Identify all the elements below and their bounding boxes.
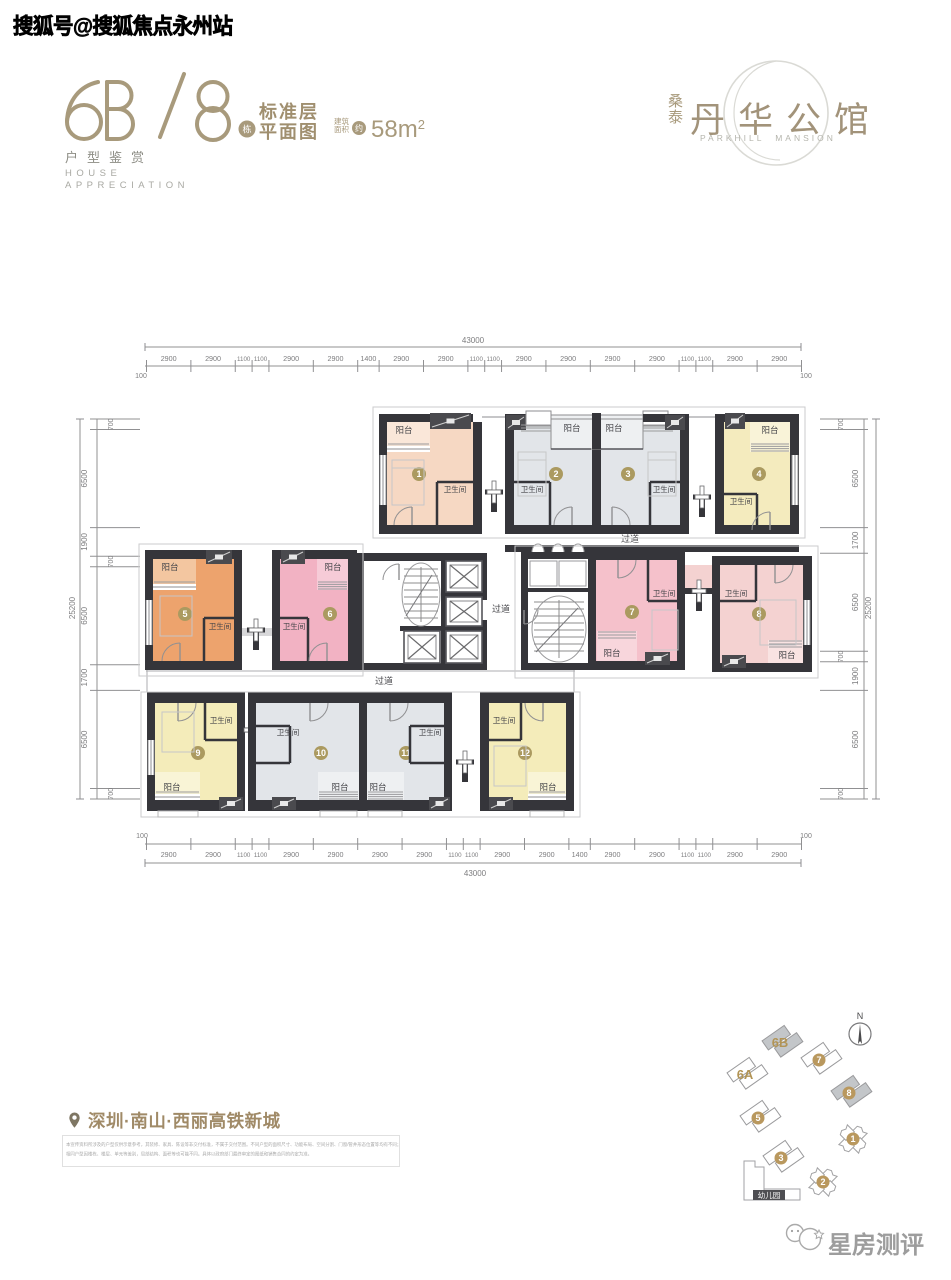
- svg-text:阳台: 阳台: [778, 650, 795, 660]
- svg-text:2900: 2900: [604, 354, 620, 363]
- svg-text:阳台: 阳台: [369, 782, 386, 792]
- svg-text:1100: 1100: [486, 356, 500, 363]
- svg-text:卫生间: 卫生间: [444, 484, 467, 494]
- svg-text:25200: 25200: [68, 596, 77, 619]
- svg-text:8: 8: [756, 609, 761, 619]
- svg-text:10: 10: [316, 748, 326, 758]
- svg-text:2900: 2900: [516, 354, 532, 363]
- svg-text:2900: 2900: [161, 850, 177, 859]
- svg-text:2900: 2900: [283, 354, 299, 363]
- svg-text:1100: 1100: [681, 356, 695, 363]
- svg-text:2900: 2900: [328, 850, 344, 859]
- svg-text:2900: 2900: [649, 850, 665, 859]
- svg-text:6500: 6500: [80, 606, 89, 624]
- svg-text:1900: 1900: [80, 532, 89, 550]
- svg-text:幼儿园: 幼儿园: [758, 1190, 781, 1200]
- svg-text:过道: 过道: [492, 603, 510, 614]
- svg-text:5: 5: [182, 609, 187, 619]
- svg-text:阳台: 阳台: [163, 782, 180, 792]
- svg-text:卫生间: 卫生间: [730, 496, 753, 506]
- svg-text:1100: 1100: [254, 356, 268, 363]
- svg-text:过道: 过道: [375, 675, 393, 686]
- svg-text:阳台: 阳台: [761, 425, 778, 435]
- svg-text:2900: 2900: [205, 354, 221, 363]
- svg-text:1900: 1900: [851, 667, 860, 685]
- svg-text:43000: 43000: [464, 869, 487, 878]
- svg-text:6500: 6500: [851, 593, 860, 611]
- svg-text:阳台: 阳台: [324, 562, 341, 572]
- svg-text:100: 100: [135, 373, 147, 380]
- svg-text:6500: 6500: [851, 730, 860, 748]
- svg-text:阳台: 阳台: [539, 782, 556, 792]
- svg-text:3: 3: [778, 1153, 783, 1163]
- svg-text:2900: 2900: [161, 354, 177, 363]
- svg-text:2900: 2900: [727, 354, 743, 363]
- svg-text:卫生间: 卫生间: [521, 484, 544, 494]
- svg-text:卫生间: 卫生间: [419, 727, 442, 737]
- svg-text:5: 5: [755, 1113, 760, 1123]
- svg-text:1100: 1100: [237, 356, 251, 363]
- svg-text:6500: 6500: [851, 469, 860, 487]
- svg-text:1400: 1400: [360, 354, 376, 363]
- svg-text:1100: 1100: [470, 356, 484, 363]
- svg-text:4: 4: [756, 469, 761, 479]
- svg-text:1100: 1100: [237, 852, 251, 859]
- svg-text:卫生间: 卫生间: [493, 715, 516, 725]
- svg-text:1700: 1700: [851, 531, 860, 549]
- svg-text:2900: 2900: [494, 850, 510, 859]
- svg-text:卫生间: 卫生间: [653, 588, 676, 598]
- svg-text:2: 2: [553, 469, 558, 479]
- svg-text:6: 6: [327, 609, 332, 619]
- svg-text:1: 1: [416, 469, 421, 479]
- svg-text:2900: 2900: [438, 354, 454, 363]
- svg-text:2900: 2900: [727, 850, 743, 859]
- svg-text:2900: 2900: [372, 850, 388, 859]
- svg-text:卫生间: 卫生间: [209, 621, 232, 631]
- svg-text:1100: 1100: [681, 852, 695, 859]
- svg-text:100: 100: [800, 373, 812, 380]
- svg-text:700: 700: [838, 418, 845, 430]
- svg-text:卫生间: 卫生间: [277, 727, 300, 737]
- svg-text:1: 1: [850, 1134, 855, 1144]
- svg-text:2900: 2900: [393, 354, 409, 363]
- svg-text:12: 12: [520, 748, 530, 758]
- svg-text:2900: 2900: [560, 354, 576, 363]
- svg-text:6B: 6B: [772, 1035, 789, 1050]
- svg-text:6500: 6500: [80, 730, 89, 748]
- svg-text:1100: 1100: [448, 852, 462, 859]
- svg-text:43000: 43000: [462, 336, 485, 345]
- svg-text:卫生间: 卫生间: [653, 484, 676, 494]
- svg-text:2900: 2900: [604, 850, 620, 859]
- svg-text:2900: 2900: [771, 850, 787, 859]
- svg-text:2900: 2900: [205, 850, 221, 859]
- svg-text:卫生间: 卫生间: [283, 621, 306, 631]
- svg-text:1100: 1100: [254, 852, 268, 859]
- svg-text:1100: 1100: [465, 852, 479, 859]
- svg-text:阳台: 阳台: [331, 782, 348, 792]
- svg-text:2900: 2900: [771, 354, 787, 363]
- svg-text:1400: 1400: [572, 850, 588, 859]
- svg-text:卫生间: 卫生间: [210, 715, 233, 725]
- svg-text:700: 700: [108, 556, 115, 568]
- svg-text:2900: 2900: [649, 354, 665, 363]
- svg-text:阳台: 阳台: [603, 648, 620, 658]
- svg-text:2900: 2900: [283, 850, 299, 859]
- svg-text:1100: 1100: [698, 852, 712, 859]
- svg-text:1700: 1700: [80, 668, 89, 686]
- svg-text:7: 7: [816, 1055, 821, 1065]
- svg-text:2900: 2900: [539, 850, 555, 859]
- svg-text:9: 9: [195, 748, 200, 758]
- svg-text:阳台: 阳台: [605, 423, 622, 433]
- svg-text:2900: 2900: [328, 354, 344, 363]
- svg-text:1100: 1100: [698, 356, 712, 363]
- svg-text:700: 700: [108, 418, 115, 430]
- svg-text:8: 8: [846, 1088, 851, 1098]
- svg-text:6500: 6500: [80, 469, 89, 487]
- svg-text:2900: 2900: [416, 850, 432, 859]
- svg-text:700: 700: [838, 651, 845, 663]
- svg-text:7: 7: [629, 607, 634, 617]
- svg-text:2: 2: [820, 1177, 825, 1187]
- svg-text:阳台: 阳台: [563, 423, 580, 433]
- svg-text:阳台: 阳台: [161, 562, 178, 572]
- svg-text:700: 700: [108, 788, 115, 800]
- svg-text:3: 3: [625, 469, 630, 479]
- svg-text:N: N: [857, 1011, 864, 1021]
- svg-text:卫生间: 卫生间: [725, 588, 748, 598]
- svg-text:700: 700: [838, 788, 845, 800]
- svg-text:阳台: 阳台: [395, 425, 412, 435]
- svg-text:6A: 6A: [737, 1067, 754, 1082]
- svg-text:25200: 25200: [864, 596, 873, 619]
